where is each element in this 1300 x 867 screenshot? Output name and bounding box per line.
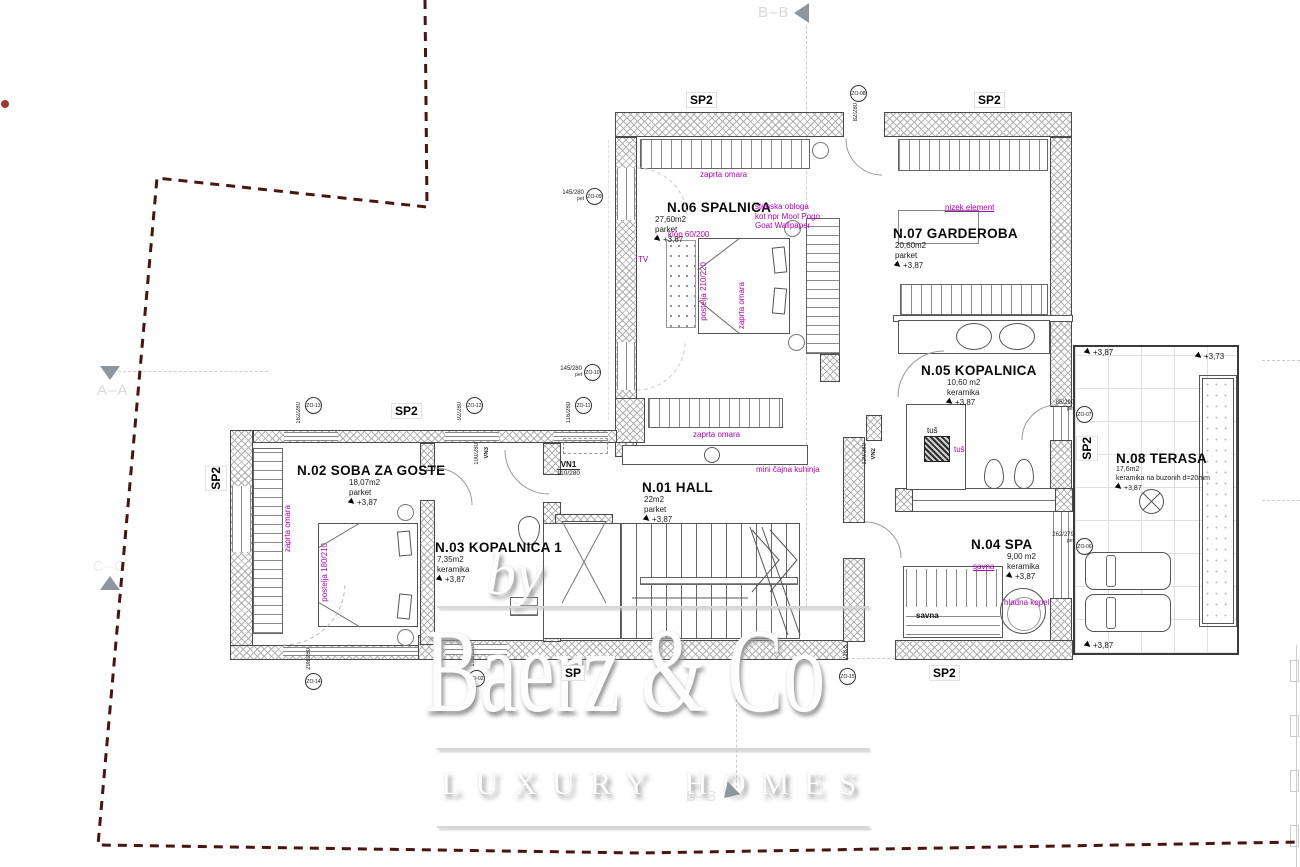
room-name: N.07 GARDEROBA xyxy=(893,226,1018,241)
room-label-n01: N.01 HALL 22m2 parket +3,87 xyxy=(642,480,713,525)
annotation-postelja-n06: postelja 210/220 xyxy=(699,262,708,321)
room-label-n04: N.04 SPA 9,00 m2 keramika +3,87 xyxy=(971,537,1039,582)
level-flag-icon xyxy=(643,515,651,523)
room-floor: parket xyxy=(644,505,713,515)
room-level: +3,87 xyxy=(895,261,1018,271)
marker-zo06: ZO-06 xyxy=(1076,538,1093,555)
vn1-dim: 110/280 xyxy=(557,469,580,477)
annotation-mini-kuhinja: mini čajna kuhinja xyxy=(756,465,820,474)
neighbor-edge-tick xyxy=(1290,660,1299,682)
room-label-n07: N.07 GARDEROBA 20,60m2 parket +3,87 xyxy=(893,226,1018,271)
elevation-terrace-nw: +3,87 xyxy=(1085,348,1113,357)
overhead-cabinet xyxy=(563,438,608,454)
lounger-backrest xyxy=(1106,597,1116,629)
section-line-aa xyxy=(118,371,268,372)
section-arrow-aa xyxy=(100,366,120,380)
stool xyxy=(788,334,805,351)
neighbor-edge-tick xyxy=(1290,715,1299,737)
guide-line-left-wall xyxy=(608,140,609,420)
stairs-rail xyxy=(640,577,798,585)
wardrobe-garderoba-top xyxy=(898,139,1048,171)
marker-zo08-dim: 82/280 xyxy=(853,103,859,121)
room-label-n02: N.02 SOBA ZA GOSTE 18,07m2 parket +3,87 xyxy=(297,463,445,508)
level-flag-icon xyxy=(436,575,444,583)
watermark-tagline: LUXURY HOMES xyxy=(441,765,871,802)
room-area: 27,60m2 xyxy=(655,215,771,225)
room-label-n05: N.05 KOPALNICA 10,60 m2 keramika +3,87 xyxy=(921,363,1037,408)
marker-zo13-dim: 162/280 xyxy=(296,402,302,424)
marker-zo09-dim: 145/280pet xyxy=(560,190,584,202)
section-arrow-bb-top xyxy=(794,3,809,23)
pillow xyxy=(772,287,787,314)
section-arrow-cc xyxy=(100,576,120,590)
room-floor: keramika xyxy=(1007,562,1039,572)
sp2-label-leftwing: SP2 xyxy=(391,403,422,419)
marker-zo11: ZO-11 xyxy=(575,397,592,414)
wall-top-left xyxy=(615,112,844,137)
door-label-vn3: VN3 xyxy=(484,447,490,459)
wall-hall-spa-lower xyxy=(843,558,865,642)
sp2-label-bottom: SP2 xyxy=(929,665,960,681)
window-note: pet xyxy=(577,196,584,202)
marker-zo10-dim: 145/280pet xyxy=(558,366,582,378)
shower xyxy=(924,436,950,462)
vn1-name: VN1 xyxy=(557,460,580,469)
marker-zo15: ZO-15 xyxy=(839,668,856,685)
room-name: N.01 HALL xyxy=(642,480,713,495)
stool xyxy=(812,142,829,159)
level-flag-icon xyxy=(1084,348,1092,356)
wardrobe-corridor xyxy=(648,398,783,428)
room-level: +3,87 xyxy=(947,398,1037,408)
annotation-klop: klop 60/200 xyxy=(668,230,709,239)
cold-plunge-tub xyxy=(1000,588,1046,634)
window-zo12 xyxy=(445,432,499,441)
room-floor: keramika xyxy=(947,388,1037,398)
guide-line-right-2 xyxy=(1262,500,1300,501)
sp2-label-east: SP2 xyxy=(1076,436,1098,461)
wall-east-garderoba xyxy=(1050,137,1072,407)
annotation-tus: tuš xyxy=(954,445,965,454)
room-area: 20,60m2 xyxy=(895,241,1018,251)
cabinet-bedroom xyxy=(806,218,840,354)
sp2-label-west: SP2 xyxy=(205,466,227,491)
level-flag-icon xyxy=(894,261,902,269)
watermark-brand: Baerz & Co xyxy=(424,608,825,734)
marker-zo12-dim: 92/280 xyxy=(457,402,463,420)
level-flag-icon xyxy=(946,398,954,406)
level-flag-icon xyxy=(654,235,662,243)
wall-top-right xyxy=(884,112,1072,137)
sink xyxy=(956,323,992,350)
wall-n05-n04 xyxy=(895,488,1073,512)
room-name: N.05 KOPALNICA xyxy=(921,363,1037,378)
level-flag-icon xyxy=(348,498,356,506)
room-floor: parket xyxy=(895,251,1018,261)
room-floor: parket xyxy=(349,488,445,498)
level-flag-icon xyxy=(1006,572,1014,580)
room-level: +3,87 xyxy=(644,515,713,525)
marker-zo14-dim: 298/280 xyxy=(306,648,312,670)
annotation-zaprta-omara: zaprta omara xyxy=(693,430,740,439)
section-label-cc: C–C xyxy=(93,558,126,575)
marker-zo07: ZO-07 xyxy=(1076,406,1093,423)
room-level: +3,87 xyxy=(349,498,445,508)
wallpaper-line3: Goat Wallpaper xyxy=(755,221,820,231)
annotation-tv: TV xyxy=(638,255,648,264)
label-tus: tuš xyxy=(927,426,938,435)
marker-zo14: ZO-14 xyxy=(305,673,322,690)
door-zo06 xyxy=(1053,512,1069,598)
wallpaper-line2: kot npr Mool Pogo xyxy=(755,212,820,222)
level-flag-icon xyxy=(1195,352,1203,360)
marker-zo10: ZO-10 xyxy=(584,364,601,381)
window-zo14 xyxy=(283,647,420,656)
marker-zo07-dim: 85/290pet xyxy=(1053,400,1074,412)
wall-south-rightwing xyxy=(895,640,1073,660)
window-zo13 xyxy=(284,432,338,441)
pillow xyxy=(772,246,788,273)
room-area: 22m2 xyxy=(644,495,713,505)
window-note: pet xyxy=(1067,538,1074,544)
guide-line-right-1 xyxy=(1262,360,1300,361)
sp2-label-top-left: SP2 xyxy=(686,92,717,108)
room-area: 18,07m2 xyxy=(349,478,445,488)
marker-zo13: ZO-13 xyxy=(305,397,322,414)
watermark-by: by xyxy=(486,540,543,609)
sp2-label-top-right: SP2 xyxy=(974,92,1005,108)
toilet xyxy=(984,459,1004,489)
wall-east-low xyxy=(1050,598,1072,645)
pillow xyxy=(397,593,413,619)
annotation-zaprta-omara: zaprta omara xyxy=(737,282,746,329)
annotation-nizek-element: nizek element xyxy=(945,203,994,212)
room-floor: keramika na buzonih d=20mm xyxy=(1116,475,1210,484)
room-area: 17,6m2 xyxy=(1116,466,1210,475)
room-level: +3,87 xyxy=(1007,572,1039,582)
annotation-zaprta-omara: zaprta omara xyxy=(283,505,292,552)
marker-zo08: ZO-08 xyxy=(850,85,867,102)
level-flag-icon xyxy=(1084,641,1092,649)
watermark-rule-bottom xyxy=(437,826,869,828)
bidet xyxy=(1014,459,1034,489)
marker-zo06-dim: 262/279pet xyxy=(1051,532,1074,544)
room-level: +3,87 xyxy=(1116,484,1210,494)
door-label-vn2-dim: 120/280 xyxy=(862,443,868,465)
pier-bedroom xyxy=(820,354,840,382)
wall-connector xyxy=(615,398,645,443)
level-flag-icon xyxy=(1115,482,1123,490)
sp-label-bottom: SP xyxy=(561,665,585,681)
room-name: N.02 SOBA ZA GOSTE xyxy=(297,463,445,478)
window-zo09 xyxy=(617,168,635,220)
sink xyxy=(999,323,1035,350)
window-zo10 xyxy=(617,342,635,390)
label-savna: savna xyxy=(916,611,939,620)
annotation-hladna-kopel: hladna kopel xyxy=(1004,598,1049,607)
section-label-bb-top: B–B xyxy=(758,4,789,21)
room-area: 10,60 m2 xyxy=(947,378,1037,388)
door-label-vn3-dim: 100/280 xyxy=(474,443,480,465)
lounger-backrest xyxy=(1106,555,1116,587)
wall-n05-n04-pier xyxy=(1055,488,1073,512)
marker-zo15-dim: 218,5 xyxy=(843,645,849,660)
door-label-vn2: VN2 xyxy=(871,448,877,460)
floor-plan-canvas: N.06 SPALNICA 27,60m2 parket +3,87 N.07 … xyxy=(0,0,1300,867)
sun-lounger xyxy=(1085,552,1171,590)
window-note: pet xyxy=(575,372,582,378)
wall-garderoba-hall-pier xyxy=(866,415,882,441)
watermark-rule-mid xyxy=(437,748,869,750)
kitchenette-sink xyxy=(704,447,720,463)
wardrobe-bedroom-top xyxy=(640,139,810,169)
door-label-vn1: VN1 110/280 xyxy=(557,460,580,477)
bench-klop xyxy=(666,240,696,328)
wallpaper-line1: stenska obloga xyxy=(755,202,820,212)
annotation-zaprta-omara: zaprta omara xyxy=(700,170,747,179)
window-note: pet xyxy=(1067,406,1074,412)
room-label-n08: N.08 TERASA 17,6m2 keramika na buzonih d… xyxy=(1116,451,1210,493)
pillow xyxy=(397,530,412,556)
window-guestroom-west xyxy=(232,486,251,552)
neighbor-edge-tick xyxy=(1290,770,1299,792)
terrace-planter xyxy=(1202,378,1234,624)
section-label-bb-bottom: B–B xyxy=(686,788,717,805)
marker-zo12: ZO-12 xyxy=(466,397,483,414)
sun-lounger xyxy=(1085,594,1171,632)
nightstand xyxy=(397,629,414,646)
wardrobe-guestroom xyxy=(253,448,283,634)
elevation-terrace-sw: +3,87 xyxy=(1085,641,1113,650)
section-label-aa: A–A xyxy=(97,382,128,399)
room-name: N.04 SPA xyxy=(971,537,1039,552)
room-name: N.08 TERASA xyxy=(1116,451,1210,466)
boundary-point-dot xyxy=(1,100,9,108)
marker-zo11-dim: 116/280 xyxy=(566,402,572,423)
annotation-wallpaper: stenska obloga kot npr Mool Pogo Goat Wa… xyxy=(755,202,820,231)
annotation-postelja-n02: postelja 180/210 xyxy=(320,543,329,602)
wall-n05-n04-pier xyxy=(895,488,913,512)
wardrobe-garderoba-bottom xyxy=(900,284,1048,315)
marker-zo09: ZO-09 xyxy=(586,188,603,205)
room-area: 9,00 m2 xyxy=(1007,552,1039,562)
elevation-terrace-ne: +3,73 xyxy=(1196,352,1224,361)
neighbor-edge-tick xyxy=(1290,825,1299,847)
